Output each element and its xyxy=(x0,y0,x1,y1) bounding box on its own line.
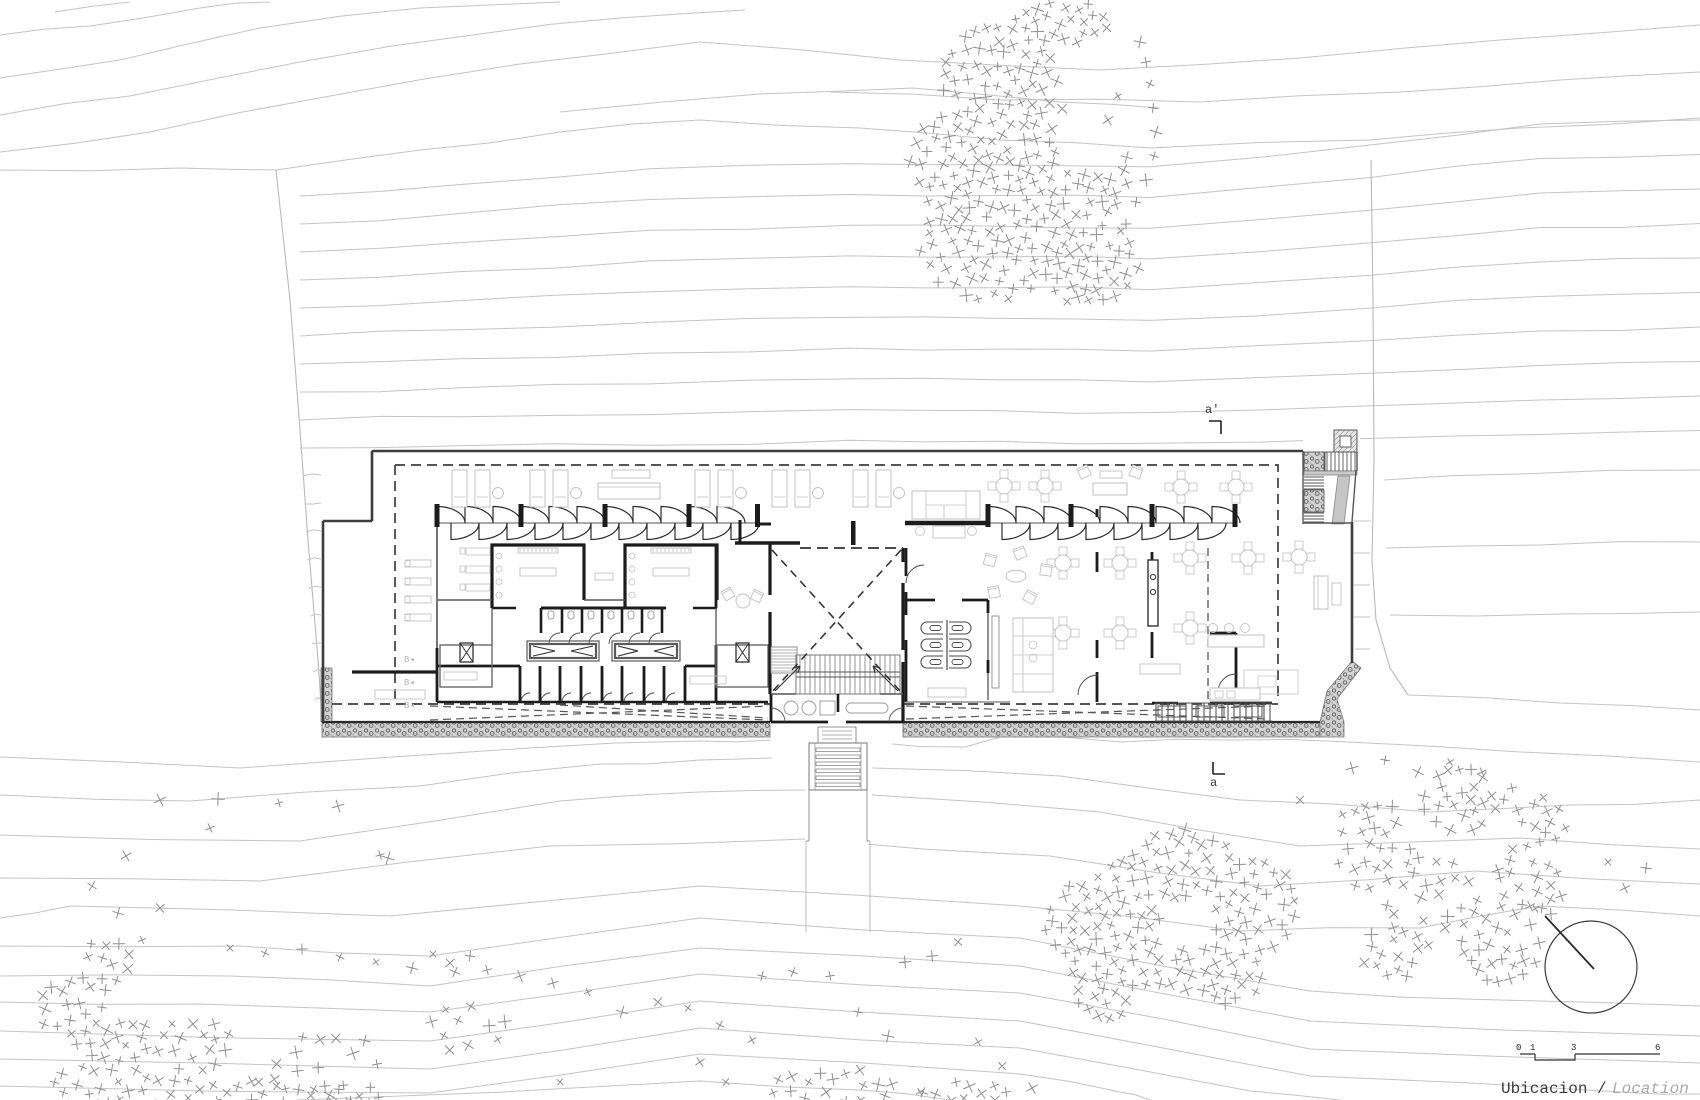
svg-text:a: a xyxy=(1210,776,1217,790)
svg-text:Location: Location xyxy=(1612,1080,1689,1098)
svg-text:3: 3 xyxy=(1571,1043,1576,1053)
svg-text:B◂: B◂ xyxy=(404,701,415,711)
svg-text:0: 0 xyxy=(1516,1043,1521,1053)
svg-text:Ubicacion /: Ubicacion / xyxy=(1501,1080,1607,1098)
svg-text:B◂: B◂ xyxy=(404,678,415,688)
svg-text:1: 1 xyxy=(1530,1043,1535,1053)
svg-text:6: 6 xyxy=(1655,1043,1660,1053)
svg-text:B◂: B◂ xyxy=(404,655,415,665)
svg-text:a': a' xyxy=(1205,403,1219,417)
